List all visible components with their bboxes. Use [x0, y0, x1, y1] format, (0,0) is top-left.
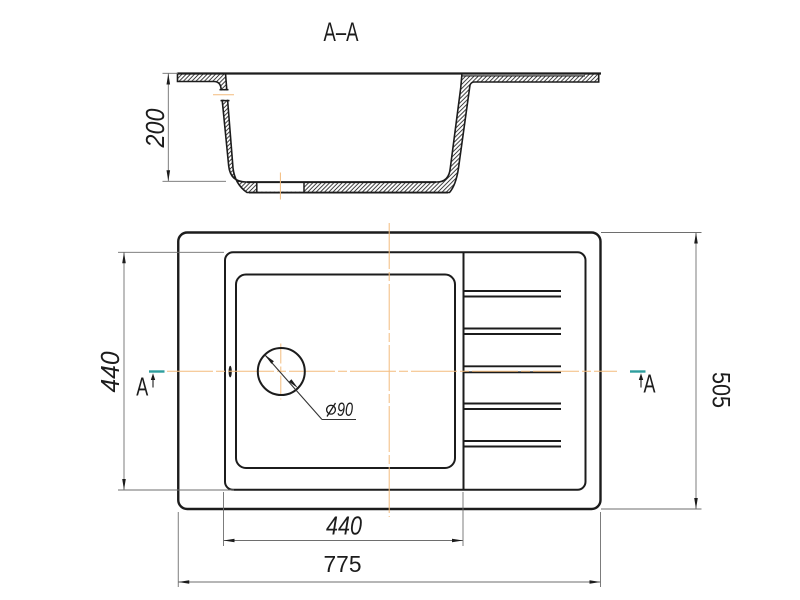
svg-text:775: 775 — [324, 551, 362, 577]
svg-text:505: 505 — [707, 372, 735, 408]
svg-text:440: 440 — [326, 511, 362, 541]
svg-text:90: 90 — [337, 400, 353, 421]
svg-text:A: A — [644, 369, 656, 399]
svg-text:200: 200 — [140, 108, 170, 148]
svg-text:A: A — [136, 372, 148, 402]
svg-text:A–A: A–A — [324, 17, 359, 47]
svg-text:440: 440 — [95, 351, 125, 393]
